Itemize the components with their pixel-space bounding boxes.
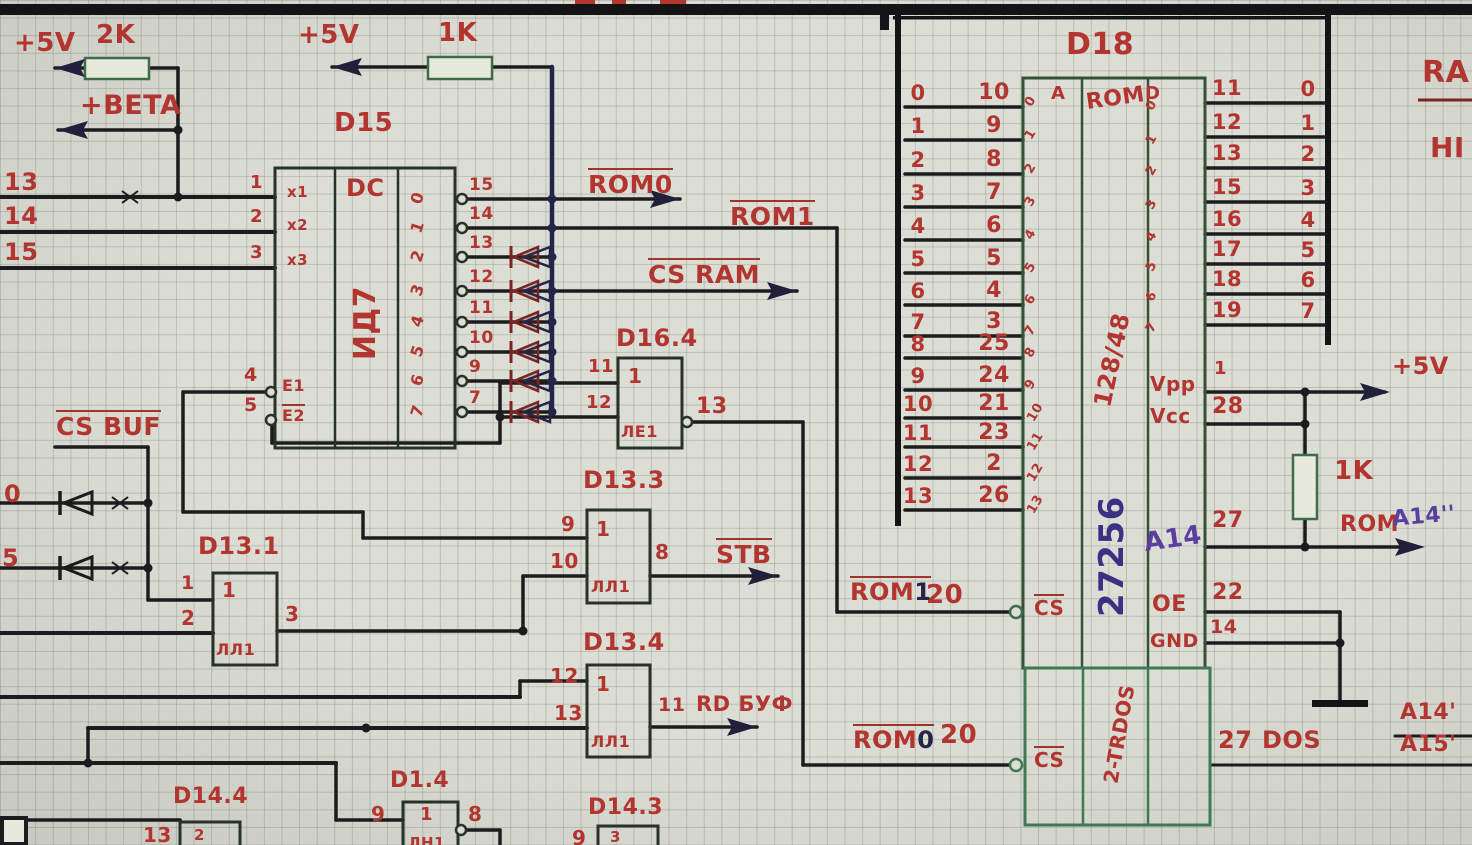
resistor-1k-top-icon (428, 57, 492, 79)
d18-data-sig-6: 6 (1292, 270, 1324, 291)
signal-rom1: ROM1 (730, 200, 815, 229)
d18-addr-sig-0: 0 (900, 83, 936, 104)
d15-x2: x2 (287, 218, 308, 233)
signal-a15-prime: A15' (1400, 734, 1456, 756)
d18-data-pin-2: 13 (1204, 143, 1250, 164)
signal-stb: STB (716, 538, 772, 567)
d15-pin5: 5 (244, 396, 258, 415)
d18-addr-sig-8: 8 (900, 334, 936, 355)
d15-out-pin-3: 12 (469, 269, 494, 286)
junction-dots (84, 126, 1345, 768)
d15-out-pin-4: 11 (469, 300, 494, 317)
g144-sym: 2 (194, 828, 205, 843)
d18-addr-pin-3: 7 (968, 182, 1020, 204)
d18-data-sig-7: 7 (1292, 301, 1324, 322)
d18-addr-pin-13: 26 (968, 485, 1020, 507)
label-1k-right: 1K (1334, 458, 1373, 484)
g133-part: ЛЛ1 (591, 579, 630, 595)
label-plus5v-mid: +5V (298, 22, 360, 48)
schematic-photo: +5V 2K +BETA +5V 1K 13 14 15 0 5 D15 DC … (0, 0, 1472, 845)
d18-data-pin-0: 11 (1204, 78, 1250, 99)
d18-data-sig-0: 0 (1292, 79, 1324, 100)
d18-data-pin-6: 18 (1204, 269, 1250, 290)
d18-addr-pin-5: 5 (968, 248, 1020, 270)
dos-label: DOS (1262, 728, 1321, 752)
dos-pin27: 27 (1218, 728, 1252, 752)
d18-title: D18 (1066, 30, 1134, 60)
d18-gnd: GND (1150, 632, 1199, 651)
d18-pin14: 14 (1210, 618, 1237, 637)
d18-addr-pin-2: 8 (968, 149, 1020, 171)
ground-symbol (1312, 700, 1368, 707)
d18-data-pin-5: 17 (1204, 239, 1250, 260)
g131-sym: 1 (222, 580, 236, 600)
d15-title: D15 (334, 110, 393, 136)
g143-in: 9 (572, 828, 586, 845)
signal-csbuf: CS BUF (56, 410, 161, 439)
g143-sym: 3 (610, 830, 621, 845)
d18-data-sig-1: 1 (1292, 113, 1324, 134)
d18-pin28: 28 (1212, 396, 1244, 418)
d15-out-pin-7: 7 (469, 390, 481, 407)
g164-sym: 1 (628, 366, 642, 386)
g134-out: 11 (658, 696, 685, 715)
signal-rom1-cs: ROM1 (850, 576, 931, 604)
label-hi: HI (1430, 134, 1465, 162)
g14-sym: 1 (420, 806, 433, 824)
d18-addr-pin-6: 4 (968, 280, 1020, 302)
d15-pin2: 2 (250, 208, 263, 226)
d18-addr-pin-9: 24 (968, 365, 1020, 387)
g134-part: ЛЛ1 (591, 734, 630, 750)
label-bus-15: 15 (4, 240, 38, 264)
g164-out: 13 (696, 396, 728, 418)
d18-data-pin-4: 16 (1204, 209, 1250, 230)
d18-addr-sig-11: 11 (900, 423, 936, 444)
d18-addr-sig-2: 2 (900, 150, 936, 171)
g131-title: D13.1 (198, 534, 280, 558)
d18-pin22: 22 (1212, 582, 1244, 604)
d18-data-pin-7: 19 (1204, 300, 1250, 321)
g133-in1: 9 (561, 514, 575, 534)
resistor-1k-right-icon (1293, 455, 1317, 519)
d15-pin4: 4 (244, 366, 258, 385)
d15-e2: E2 (282, 404, 305, 424)
d18-vcc: Vcc (1150, 406, 1191, 426)
d18-vpp: Vpp (1150, 374, 1196, 394)
g134-title: D13.4 (583, 630, 665, 654)
g143-title: D14.3 (588, 797, 663, 819)
g131-out: 3 (285, 604, 299, 624)
d18-addr-sig-1: 1 (900, 116, 936, 137)
d18-addr-sig-12: 12 (900, 454, 936, 475)
g131-part: ЛЛ1 (216, 642, 255, 658)
d15-x3: x3 (287, 253, 308, 268)
d15-out-pin-0: 15 (469, 177, 494, 194)
d18-addr-pin-10: 21 (968, 393, 1020, 415)
d18-addr-sig-7: 7 (900, 312, 936, 333)
g14-title: D1.4 (390, 770, 449, 792)
g133-out: 8 (655, 542, 669, 562)
d18-addr-pin-12: 2 (968, 453, 1020, 475)
d18-data-sig-4: 4 (1292, 210, 1324, 231)
label-bus-13: 13 (4, 170, 38, 194)
d18-pin27: 27 (1212, 510, 1244, 532)
dos-cs-label: CS (1034, 746, 1064, 770)
d18-addr-pin-1: 9 (968, 115, 1020, 137)
d18-addr-pin-0: 10 (968, 82, 1020, 104)
d18-data-sig-5: 5 (1292, 240, 1324, 261)
d15-e1: E1 (282, 378, 305, 394)
g14-out: 8 (468, 804, 482, 824)
d15-pin3: 3 (250, 244, 263, 262)
signal-rom0: ROM0 (588, 168, 673, 197)
signal-csram: CS RAM (648, 258, 760, 287)
g164-in1: 11 (588, 358, 614, 376)
gate-d14-3-outline (598, 826, 658, 845)
d15-out-pin-5: 10 (469, 330, 494, 347)
d18-addr-sig-10: 10 (900, 394, 936, 415)
g164-part: ЛЕ1 (621, 424, 658, 440)
g131-in1: 1 (181, 574, 195, 593)
gate-d14-4-outline (180, 822, 240, 845)
signal-a14-quote: A14'' (1391, 503, 1456, 530)
label-bus-14: 14 (4, 204, 38, 228)
d15-dc-label: DC (346, 176, 385, 200)
d18-pin1: 1 (1214, 360, 1227, 378)
label-plus5v-left: +5V (14, 30, 76, 56)
g133-title: D13.3 (583, 468, 665, 492)
d15-pin1: 1 (250, 174, 263, 192)
d18-addr-pin-4: 6 (968, 215, 1020, 237)
g133-in2: 10 (550, 551, 579, 571)
label-2k: 2K (96, 22, 135, 48)
d15-out-pin-1: 14 (469, 206, 494, 223)
d18-addr-pin-11: 23 (968, 422, 1020, 444)
wiring-layer (0, 0, 1472, 845)
g164-in2: 12 (586, 394, 612, 412)
d18-addr-sig-13: 13 (900, 486, 936, 507)
label-bus-0: 0 (4, 482, 21, 506)
d15-out-pin-6: 9 (469, 359, 481, 376)
g164-title: D16.4 (616, 326, 698, 350)
d15-out-pin-2: 13 (469, 235, 494, 252)
d18-addr-sig-4: 4 (900, 216, 936, 237)
g144-in: 13 (143, 825, 172, 845)
d18-a14-note: A14 (1142, 522, 1203, 556)
d18-addr-sig-5: 5 (900, 249, 936, 270)
d18-col-a: A (1051, 85, 1065, 103)
d18-cs-label: CS (1034, 594, 1064, 618)
d18-oe: OE (1152, 594, 1187, 616)
g14-in: 9 (371, 804, 385, 824)
g134-in2: 13 (554, 703, 583, 723)
g144-title: D14.4 (173, 786, 248, 808)
g131-in2: 2 (181, 608, 195, 628)
d18-part-number: 27256 (1095, 497, 1129, 617)
signal-rom-a14: ROM (1340, 514, 1399, 536)
g14-part: ЛН1 (408, 836, 445, 845)
label-bus-5: 5 (2, 546, 19, 570)
label-ram: RA (1422, 58, 1469, 88)
resistor-2k-icon (85, 58, 149, 79)
d18-data-sig-2: 2 (1292, 144, 1324, 165)
d18-data-pin-3: 15 (1204, 177, 1250, 198)
signal-a14-prime: A14' (1400, 702, 1456, 724)
g133-sym: 1 (596, 519, 610, 539)
d18-addr-pin-8: 25 (968, 333, 1020, 355)
d18-addr-sig-6: 6 (900, 281, 936, 302)
label-plus5v-right: +5V (1392, 354, 1449, 378)
label-beta: +BETA (80, 92, 181, 119)
d15-x1: x1 (287, 185, 308, 200)
d18-data-sig-3: 3 (1292, 178, 1324, 199)
d18-addr-sig-9: 9 (900, 366, 936, 387)
d18-addr-sig-3: 3 (900, 183, 936, 204)
d18-pin20b: 20 (940, 722, 977, 748)
g134-sym: 1 (596, 674, 610, 694)
d18-addr-pin-7: 3 (968, 311, 1020, 333)
signal-rom0-cs: ROM0 (853, 724, 934, 752)
g134-in1: 12 (550, 666, 579, 686)
label-1k-top: 1K (438, 20, 477, 46)
d18-pin20a: 20 (926, 582, 963, 608)
signal-rdbuf: RD БУФ (696, 694, 793, 715)
d15-part-label: ИД7 (351, 279, 381, 367)
d18-data-pin-1: 12 (1204, 112, 1250, 133)
